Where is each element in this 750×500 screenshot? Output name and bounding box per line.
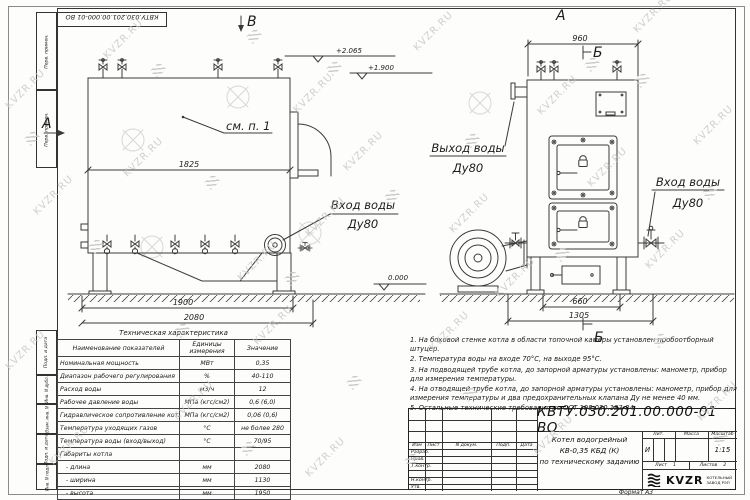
dim-660: 660 [572,297,587,306]
upper-door [549,136,617,199]
dim-1825: 1825 [179,160,199,169]
sheet-value: 1 [673,463,676,468]
col-header-value: Значение [235,340,291,357]
inlet-label-right-1: Вход воды [656,175,720,189]
sidebar-label-podp-data-2: Подп. и дата [36,434,57,464]
registration-marks [122,86,491,258]
format-note: Формат А3 [576,489,696,496]
role-utv: Утв. [409,484,444,491]
control-panel [596,92,626,116]
outlet-pipe-flange [511,83,527,99]
rev-header-ndoc: N докум. [442,442,491,449]
table-row: Рабочее давление водыМПа (кгс/см2)0,6 (6… [58,396,291,409]
note-1: 1. На боковой стенке котла в области топ… [410,336,742,354]
sidebar-label-inv-podl: Инв. N подл. [36,464,57,490]
rev-header-podp: Подп. [491,442,516,449]
table-row: - высотамм1950 [58,487,291,500]
table-row: Температура воды (вход/выход)°С70/95 [58,435,291,448]
see-note-label: см. п. 1 [226,119,270,133]
lit-value: И [642,438,653,461]
title-block: КВТУ.030.201.00.000-01 ВО Изм Лист N док… [408,408,736,490]
left-view-dimensions [44,16,432,327]
ground-line [68,294,734,302]
scale-value: 1:15 [708,438,737,461]
section-marker-b-top: Б [593,45,603,61]
product-line-1: Котел водогрейный [537,435,642,446]
top-stamp-box: КВТУ.030.201.00.000-01 ВО [57,12,167,27]
dim-2080: 2080 [184,313,204,322]
sidebar-label-perv-primen-1: Перв. примен. [36,12,57,90]
drawing-sheet: { "watermark": { "text": "KVZR.RU" }, "s… [0,0,750,500]
document-number: КВТУ.030.201.00.000-01 ВО [537,409,737,431]
dim-1900: 1900 [173,298,193,307]
product-line-3: по техническому заданию [537,457,642,468]
inlet-label-left-2: Ду80 [347,217,378,231]
dim-1305: 1305 [569,311,589,320]
view-marker-a-right: А [555,8,566,24]
logo-subtitle: КОТЕЛЬНЫЙ ЗАВОД РЭП [706,475,732,485]
sheets-value: 2 [723,463,726,468]
outlet-label-2: Ду80 [452,161,483,175]
table-row: Температура уходящих газов°Сне более 280 [58,422,291,435]
section-marker-v: В [247,14,257,30]
note-3: 3. На подводящей трубе котла, до запорно… [410,366,742,384]
product-line-2: КВ-0,35 КБД (К) [537,446,642,457]
elevation-1900: +1.900 [368,64,394,72]
outlet-label-1: Выход воды [431,141,504,155]
col-header-units: Единицы измерения [180,340,235,357]
table-row: Габариты котла [58,448,291,461]
note-4: 4. На отводящей трубе котла, до запорной… [410,385,742,403]
inlet-valve-right [638,226,664,249]
rev-header-izm: Изм [409,442,425,449]
technical-notes: 1. На боковой стенке котла в области топ… [410,336,742,414]
sidebar-label-perv-primen-2: Перв. примен. [36,90,57,168]
boiler-base [527,257,630,294]
lower-door [549,203,617,249]
role-prov: Пров. [409,456,444,463]
rev-header-list: Лист [425,442,442,449]
elevation-zero: 0.000 [388,274,409,282]
kvzr-coil-icon [647,473,663,487]
kvzr-logo: KVZR КОТЕЛЬНЫЙ ЗАВОД РЭП [642,469,737,491]
elevation-2065: +2.065 [336,47,362,55]
col-header-name: Наименование показателей [58,340,180,357]
logo-text: KVZR [666,474,703,487]
mass-header: Масса [675,431,708,438]
table-row: - ширинамм1130 [58,474,291,487]
role-tkontr: Т.контр. [409,463,444,470]
table-row: - длинамм2080 [58,461,291,474]
sidebar-label-inv-dubl: Инв. N дубл. [36,375,57,404]
product-title: Котел водогрейный КВ-0,35 КБД (К) по тех… [537,431,642,491]
tech-table: Наименование показателей Единицы измерен… [57,339,291,500]
sidebar-label-vzam-inv: Взам. инв. N [36,404,57,434]
inlet-flange [265,235,286,256]
sidebar-label-podp-data-1: Подп. и дата [36,330,57,375]
table-row: Расход водым3/ч12 [58,383,291,396]
sheet-cell: Лист 1 [642,461,689,469]
table-row: Номинальная мощностьМВт0,35 [58,357,291,370]
note-2: 2. Температура воды на входе 70°С, на вы… [410,355,742,364]
left-view-boiler-side [81,59,331,294]
top-stamp-text: КВТУ.030.201.00.000-01 ВО [58,13,166,21]
inlet-label-left-1: Вход воды [331,198,395,212]
scale-header: Масштаб [708,431,737,438]
rev-header-data: Дата [516,442,537,449]
table-row: Диапазон рабочего регулирования%40-110 [58,370,291,383]
sheet-label: Лист [655,463,667,468]
role-nkontr: Н.контр. [409,477,444,484]
dim-960: 960 [572,34,587,43]
right-view-boiler-front [450,61,664,294]
lit-header: Лит. [642,431,675,438]
table-row: Гидравлическое сопротивление котлаМПа (к… [58,409,291,422]
sheets-label: Листов [700,463,718,468]
sheets-cell: Листов 2 [689,461,737,469]
table-header-row: Наименование показателей Единицы измерен… [58,340,291,357]
tech-table-title: Техническая характеристика [57,329,290,337]
inlet-label-right-2: Ду80 [672,196,703,210]
tech-characteristics: Техническая характеристика Наименование … [57,329,290,500]
role-razrab: Разраб. [409,449,444,456]
